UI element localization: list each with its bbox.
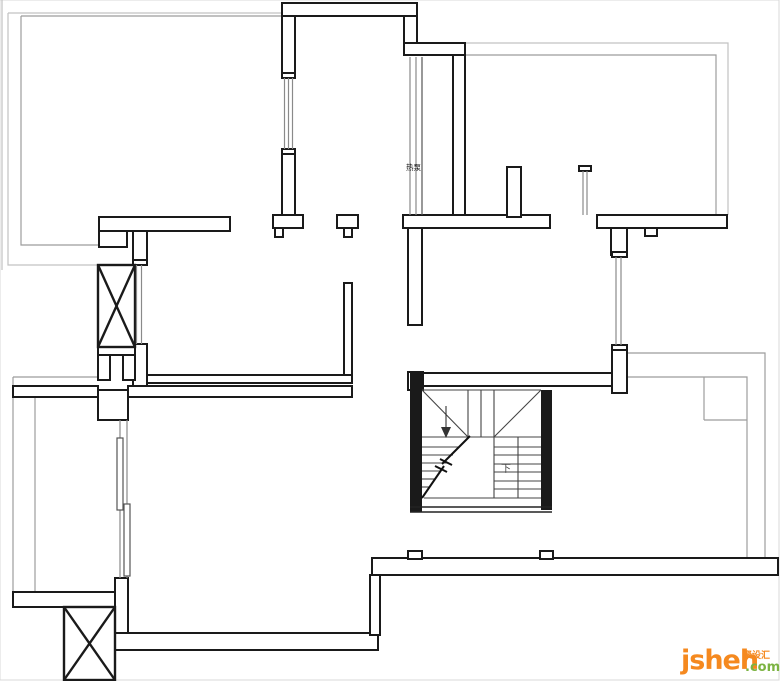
wall-hanging [408,228,422,325]
balcony-right-outer [627,353,765,558]
window-cap-tl-bottom [282,149,295,154]
stair-wall-right [541,390,552,510]
wall-bottom-right-jamb1 [408,551,422,559]
slidingdoor-panel1 [117,438,123,510]
wall-toproom-left-upper [282,16,295,77]
wall-toproom-right [453,55,465,215]
wall-corridor-b-stub [275,228,283,237]
stair-arrow-head [441,427,451,438]
heat-pump-label: 热泵 [406,162,421,172]
wall-bottom-left-v [115,578,128,638]
window-cap-tl-top [282,73,295,78]
slidingdoor-panel2 [124,504,130,576]
wall-living-thin [145,375,352,383]
wall-bottom-h [115,633,378,650]
wall-bl-lobby [13,592,115,607]
wall-stair-top [423,373,627,386]
annotations: 热泵 [406,162,421,172]
wall-toproom-step-h [404,43,465,55]
terrace-tr-inner [465,55,716,215]
terrace-tl-inner [21,16,98,245]
watermark: jsheh 聚设汇 .com [681,646,780,680]
wall-corridor-e [597,215,727,228]
wall-main-center [128,386,352,397]
wall-toproom-left-lower [282,153,295,218]
stair-wall-left [410,372,422,512]
wall-bottom-right [372,558,778,575]
wall-corridor-b [273,215,303,228]
window-cap-mid [579,166,591,171]
wall-right-room-corner [612,350,627,393]
wall-corridor-a [99,217,230,231]
stair-diag-right [494,390,541,437]
terrace-tr-outer [465,43,728,215]
floor-plan-canvas: 下热泵 jsheh 聚设汇 .com [0,0,780,681]
wall-toproom-top [282,3,417,16]
wall-below-elevator-top [98,347,135,355]
shaft-bottom-left [64,607,115,680]
wall-corridor-a-notch [99,231,127,247]
wall-corridor-c [337,215,358,228]
balcony-right-inner [627,377,747,558]
stairs: 下 [410,372,552,512]
wall-corridor-e-notch [645,228,657,236]
wall-room-partition-v [507,167,521,217]
wall-corridor-e-stub [611,228,627,255]
stair-down-label: 下 [501,464,511,475]
wall-main-left [13,386,98,397]
wall-corridor-d [403,215,550,228]
stair-break-seg2 [442,436,470,464]
wall-corridor-c-stub [344,228,352,237]
window-cap-right-top [612,252,627,257]
elevator-shaft [98,265,135,347]
wall-bottom-riser [370,575,380,635]
wall-bottom-right-jamb2 [540,551,553,559]
wall-below-elevator-leg2 [123,355,135,380]
wall-center-partition [344,283,352,383]
wall-main-stub-block [98,390,128,420]
wall-below-elevator-leg1 [98,355,110,380]
wall-toproom-step-v [404,16,417,43]
watermark-com-text: .com [745,660,780,675]
window-cap-right-bottom [612,345,627,350]
floor-plan-svg: 下热泵 [0,0,780,681]
